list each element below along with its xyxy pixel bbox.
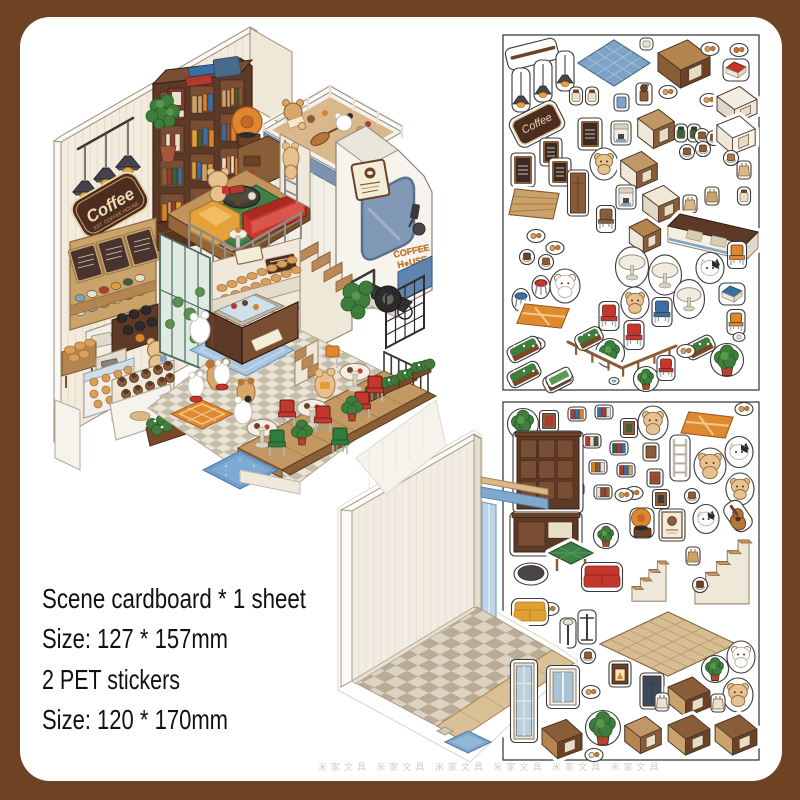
svg-text:Scene cardboard * 1 sheet: Scene cardboard * 1 sheet — [42, 583, 306, 614]
svg-text:2 PET stickers: 2 PET stickers — [42, 664, 180, 695]
svg-text:Size: 120 * 170mm: Size: 120 * 170mm — [42, 704, 228, 735]
svg-text:米家文具 米家文具 米家文具 米家文具 米家文具 米家文具: 米家文具 米家文具 米家文具 米家文具 米家文具 米家文具 — [318, 761, 663, 772]
svg-text:Size: 127 * 157mm: Size: 127 * 157mm — [42, 623, 228, 654]
